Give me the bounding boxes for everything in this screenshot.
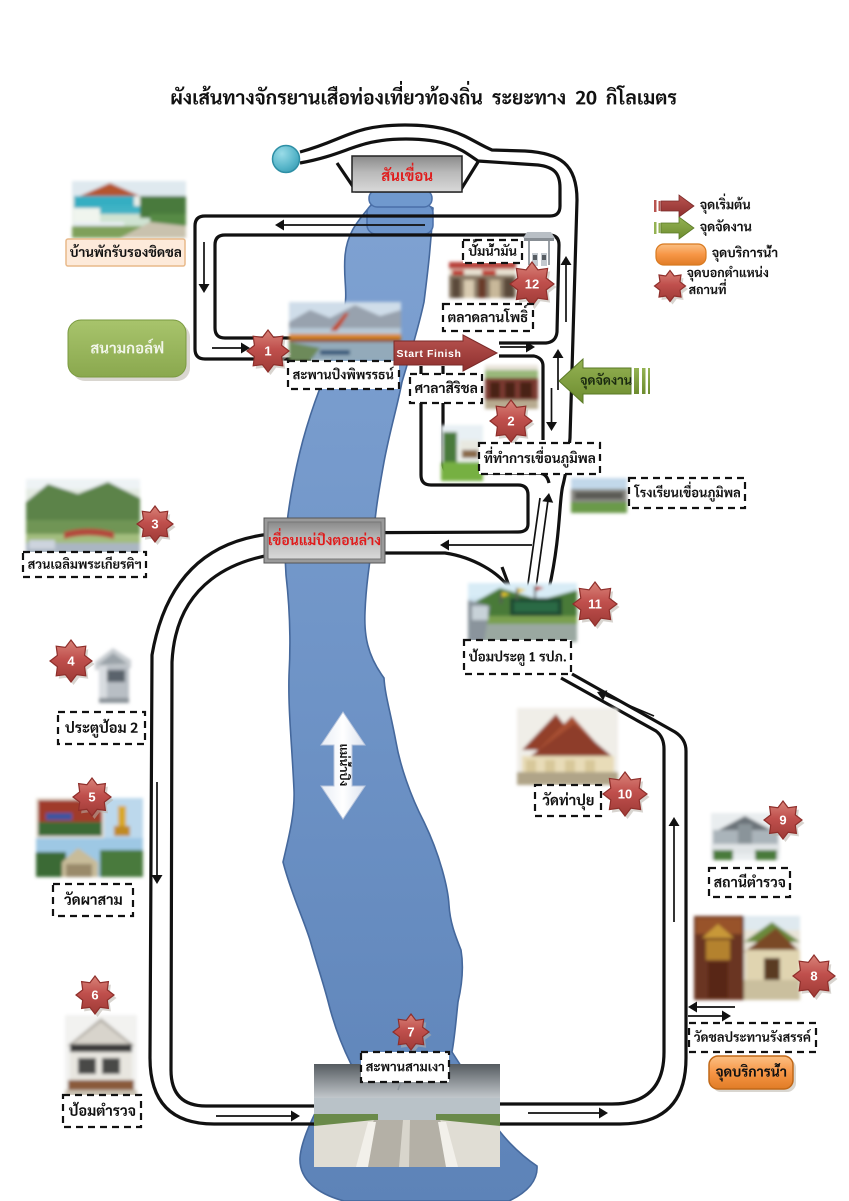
svg-text:8: 8: [810, 969, 817, 984]
svg-text:1: 1: [264, 344, 271, 359]
svg-text:7: 7: [407, 1025, 414, 1040]
svg-text:2: 2: [507, 414, 514, 429]
svg-text:6: 6: [91, 988, 98, 1003]
svg-text:Start Finish: Start Finish: [397, 348, 462, 360]
svg-text:10: 10: [618, 787, 632, 802]
svg-text:4: 4: [67, 654, 75, 669]
svg-text:11: 11: [588, 597, 602, 612]
svg-text:3: 3: [151, 517, 158, 532]
svg-text:5: 5: [88, 790, 95, 805]
svg-text:12: 12: [525, 277, 539, 292]
svg-text:9: 9: [779, 813, 786, 828]
